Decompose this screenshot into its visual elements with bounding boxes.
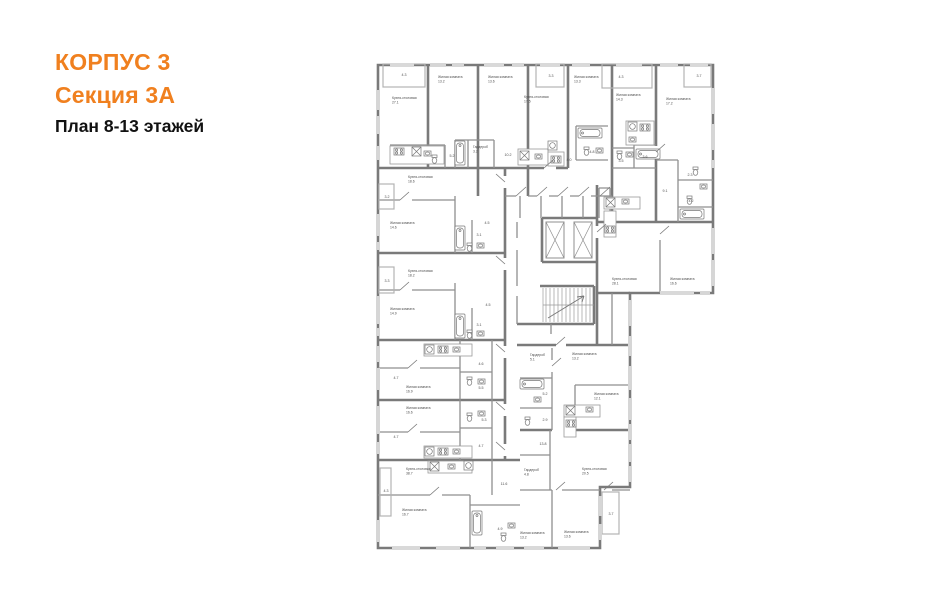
area-label: 10.2 [505,153,512,157]
sink-icon [478,411,485,416]
area-label: 3.1 [477,323,482,327]
wm-icon [628,122,637,131]
sink-icon [700,184,707,189]
area-label: 5.3 [482,418,487,422]
room-label: Жилая комната14.6 [390,221,415,229]
hob-icon [566,406,575,415]
area-label: 4.3 [384,489,389,493]
stove-icon [394,148,404,155]
area-label: 4.3 [619,75,624,79]
room-label: Кухня-столовая38.7 [406,467,431,475]
sink-icon [534,397,541,402]
door-swing [408,424,417,432]
area-label: 4.3 [402,73,407,77]
wc-icon [501,533,506,541]
area-label: 4.7 [394,376,399,380]
area-label: 3.2 [385,195,390,199]
stove-icon [640,124,650,131]
tub-v-icon [455,141,465,165]
area-label: 5.5 [479,386,484,390]
area-label: 5.2 [543,392,548,396]
sink-icon [626,152,633,157]
wc-icon [467,413,472,421]
hob-icon [412,147,421,156]
door-swing [430,487,439,495]
area-label: 3.3 [549,74,554,78]
room-label: Жилая комната16.6 [670,277,695,285]
door-swing [496,174,505,182]
wc-icon [525,417,530,425]
room-label: Жилая комната16.6 [406,406,431,414]
door-swing [408,360,417,368]
wm-icon [548,141,557,150]
hob-icon [430,462,439,471]
kitchen-counters [390,121,654,473]
sink-icon [453,449,460,454]
area-label: 5.2 [450,154,455,158]
wm-icon [425,345,434,354]
room-label: Гардероб5.1 [530,353,545,361]
door-swing [556,337,565,345]
room-label: Жилая комната13.2 [520,531,545,539]
wc-icon [467,330,472,338]
sink-icon [478,379,485,384]
door-swing [660,226,669,234]
area-label: 3.7 [609,512,614,516]
wm-icon [464,461,473,470]
room-label: Гардероб3.2 [473,145,488,153]
room-label: Жилая комната13.3 [574,75,599,83]
floor-plan: Кухня-столовая27.1Жилая комната13.2Жилая… [0,0,941,600]
area-label: 9.1 [663,189,668,193]
door-swing [400,282,409,290]
sink-icon [453,347,460,352]
door-swing [579,187,589,196]
area-label: 4.7 [394,435,399,439]
tub-h-icon [578,128,602,138]
door-swing [556,482,565,490]
stove-icon [438,346,448,353]
room-label: Кухня-столовая20.5 [582,467,607,475]
area-label: 11.6 [501,482,508,486]
sink-icon [586,407,593,412]
wc-icon [584,147,589,155]
area-label: 2.3 [688,173,693,177]
tub-h-icon [636,149,660,159]
area-label: 3.3 [385,279,390,283]
sink-icon [477,331,484,336]
page: КОРПУС 3 Секция 3А План 8-13 этажей [0,0,941,600]
hob-icon [520,151,529,160]
room-label: Жилая комната14.3 [616,93,641,101]
stove-icon [438,448,448,455]
wc-icon [467,377,472,385]
area-label: 4.9 [498,527,503,531]
door-swing [558,187,568,196]
door-swing [552,358,561,366]
door-swing [400,192,409,200]
door-swing [496,344,505,352]
room-label: Жилая комната16.7 [402,508,427,516]
sink-icon [629,137,636,142]
area-label: 4.5 [485,221,490,225]
stove-icon [566,420,576,427]
door-swing [537,187,547,196]
room-label: Жилая комната13.2 [572,352,597,360]
wm-icon [425,447,434,456]
door-swing [496,256,505,264]
sink-icon [596,148,603,153]
room-label: Кухня-столовая18.6 [408,175,433,183]
staircase [543,288,594,322]
area-label: 3.7 [697,74,702,78]
sink-icon [508,523,515,528]
sink-icon [448,464,455,469]
area-label: 4.8 [590,150,595,154]
balcony [602,64,652,88]
tub-h-icon [680,209,704,219]
room-label: Жилая комната13.2 [438,75,463,83]
area-label: 4.5 [486,303,491,307]
room-label: Жилая комната16.9 [406,385,431,393]
sink-icon [622,199,629,204]
wc-icon [693,167,698,175]
stove-icon [551,156,561,163]
area-label: 2.9 [543,418,548,422]
hob-icon [606,198,615,207]
door-swing [516,187,526,196]
room-label: Кухня-столовая27.1 [392,96,417,104]
room-label: Жилая комната13.6 [488,75,513,83]
tub-v-icon [472,511,482,535]
room-label: Кухня-столовая18.2 [408,269,433,277]
area-label: 3.1 [477,233,482,237]
room-label: Жилая комната14.9 [390,307,415,315]
wc-icon [467,243,472,251]
elevator-shafts [546,222,592,258]
area-label: 4.7 [479,444,484,448]
stove-icon [605,226,615,233]
area-label: 4.2 [689,199,694,203]
door-swing [496,442,505,450]
area-label: 3.5 [619,159,624,163]
tub-h-icon [520,379,544,389]
area-label: 3.6 [643,155,648,159]
room-label: Кухня-столовая28.1 [612,277,637,285]
sink-icon [477,243,484,248]
room-label: Жилая комната12.1 [594,392,619,400]
room-label: Кухня-столовая17.5 [524,95,549,103]
area-label: 4.0 [567,158,572,162]
tub-v-icon [455,314,465,338]
room-label: Гардероб4.8 [524,468,539,476]
door-swing [496,402,505,410]
tub-v-icon [455,226,465,250]
sink-icon [535,154,542,159]
wc-icon [432,155,437,163]
sink-icon [424,151,431,156]
room-label: Жилая комната17.2 [666,97,691,105]
room-label: Жилая комната13.6 [564,530,589,538]
door-swing [656,144,665,152]
area-label: 13.8 [540,442,547,446]
walls-thick [378,65,713,548]
area-label: 4.6 [479,362,484,366]
